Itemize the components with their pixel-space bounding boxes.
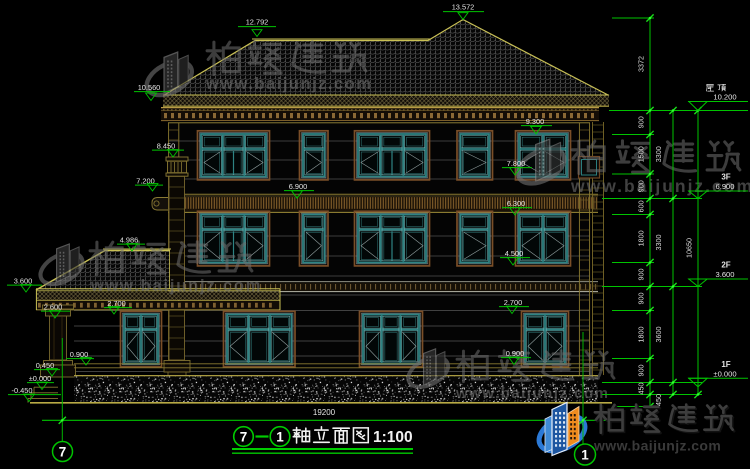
svg-text:1F: 1F [721, 360, 730, 369]
svg-text:3300: 3300 [654, 146, 663, 162]
svg-text:1800: 1800 [637, 230, 646, 246]
svg-text:1: 1 [581, 448, 589, 463]
svg-text:1:100: 1:100 [373, 429, 413, 446]
svg-text:4.500: 4.500 [505, 249, 524, 258]
svg-text:3300: 3300 [654, 235, 663, 251]
svg-text:13.572: 13.572 [452, 3, 475, 12]
svg-text:7: 7 [59, 445, 67, 460]
svg-text:10.200: 10.200 [713, 93, 736, 102]
svg-text:8.450: 8.450 [157, 142, 176, 151]
svg-text:6.300: 6.300 [507, 199, 526, 208]
svg-text:900: 900 [637, 365, 646, 377]
svg-text:10.560: 10.560 [138, 83, 161, 92]
svg-text:12.792: 12.792 [246, 18, 269, 27]
svg-text:450: 450 [654, 394, 663, 406]
svg-text:2F: 2F [721, 261, 730, 270]
svg-text:600: 600 [637, 200, 646, 212]
svg-text:3.600: 3.600 [715, 270, 734, 279]
svg-text:±0.000: ±0.000 [713, 369, 736, 378]
svg-text:19200: 19200 [313, 408, 336, 417]
svg-text:www.baijunjz.com: www.baijunjz.com [455, 385, 609, 402]
svg-text:7.800: 7.800 [507, 159, 526, 168]
svg-text:450: 450 [637, 383, 646, 395]
svg-text:900: 900 [637, 180, 646, 192]
svg-text:6.900: 6.900 [289, 182, 308, 191]
svg-text:6.900: 6.900 [715, 182, 734, 191]
svg-text:900: 900 [637, 269, 646, 281]
svg-text:7: 7 [240, 430, 248, 445]
svg-text:www.baijunjz.com: www.baijunjz.com [205, 75, 372, 93]
svg-text:900: 900 [637, 116, 646, 128]
svg-text:3372: 3372 [637, 56, 646, 72]
svg-text:3F: 3F [721, 173, 730, 182]
svg-text:www.baijunjz.com: www.baijunjz.com [593, 438, 721, 454]
svg-text:10650: 10650 [685, 238, 694, 258]
svg-text:1500: 1500 [637, 146, 646, 162]
svg-text:3600: 3600 [654, 327, 663, 343]
svg-text:1800: 1800 [637, 327, 646, 343]
svg-text:9.300: 9.300 [526, 117, 545, 126]
svg-text:4.986: 4.986 [120, 236, 139, 245]
svg-text:www.baijunjz.com: www.baijunjz.com [90, 277, 262, 295]
svg-text:7.200: 7.200 [136, 177, 155, 186]
svg-text:1: 1 [276, 430, 284, 445]
svg-text:900: 900 [637, 293, 646, 305]
